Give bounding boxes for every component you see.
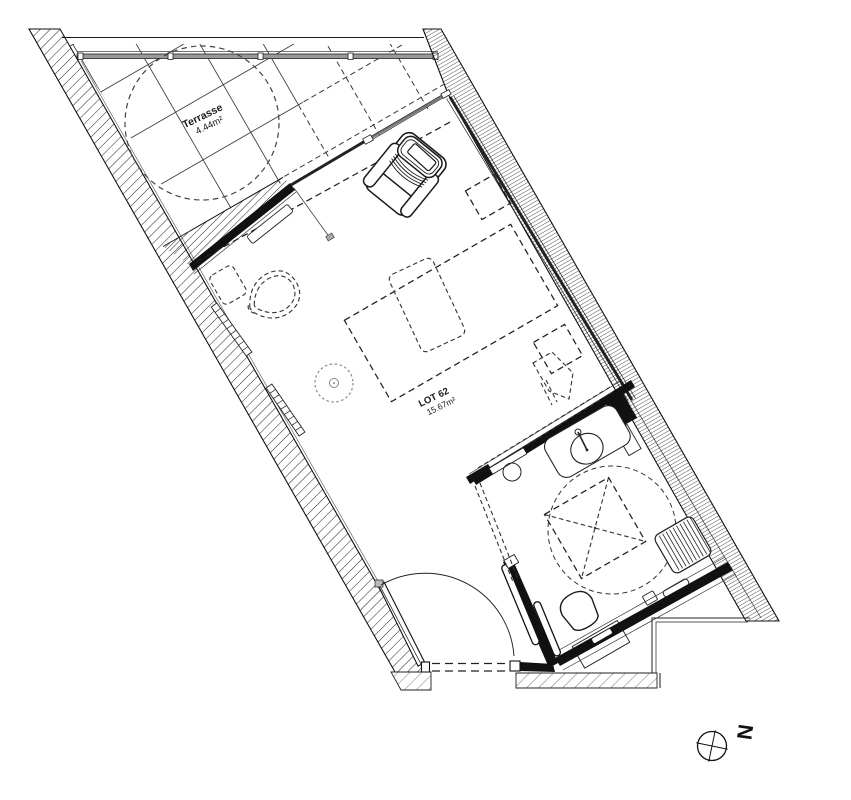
svg-text:N: N bbox=[732, 723, 757, 741]
